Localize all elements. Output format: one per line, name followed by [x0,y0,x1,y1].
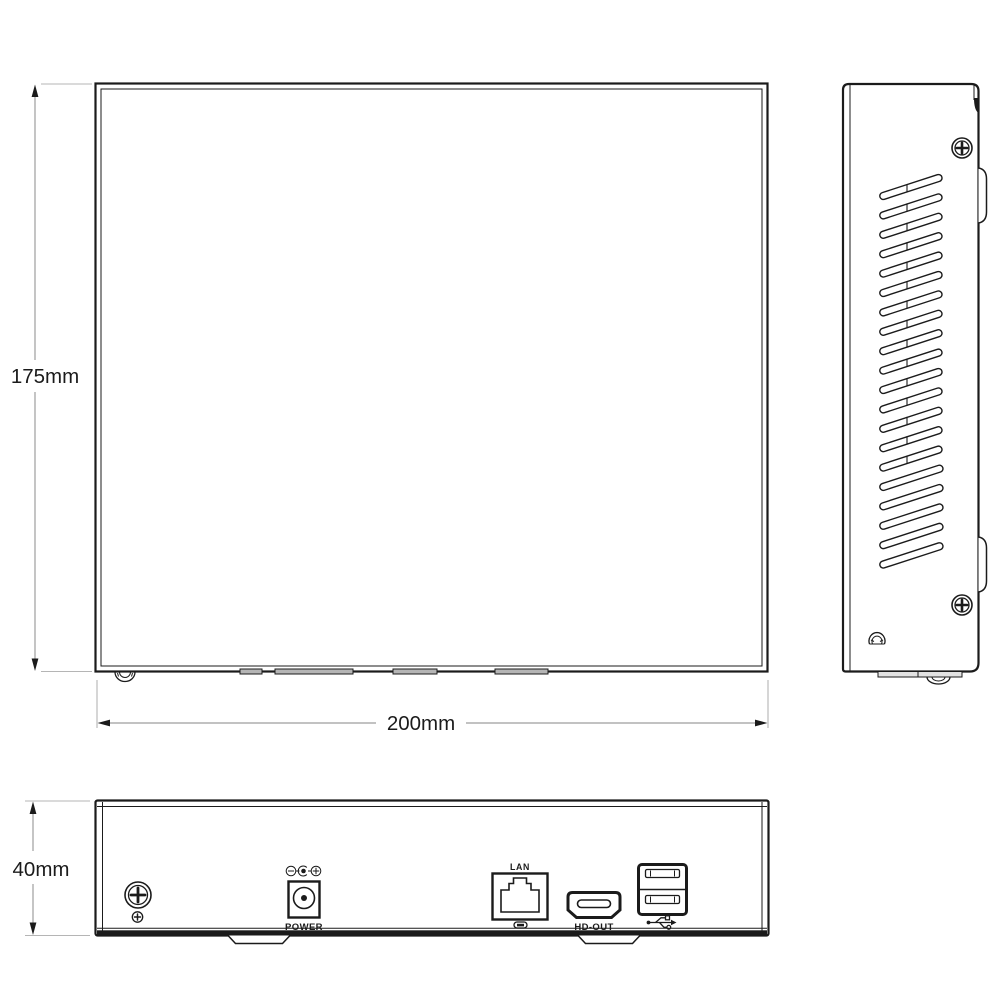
phillips-screw-icon [952,595,972,615]
hdmi-label: HD-OUT [574,922,613,933]
rubber-foot-icon [115,672,135,682]
lan-label: LAN [510,862,530,872]
rear-foot [228,936,290,944]
rear-panel-view: POWER LAN HD-OUT [96,801,769,944]
depth-dimension: 40mm [12,801,90,936]
ground-screw-icon [132,912,142,922]
dimension-arrow-icon [30,923,37,936]
bottom-tab [878,672,918,678]
rubber-foot-icon [927,677,950,684]
dimension-arrow-icon [32,659,39,672]
depth-dimension-label: 40mm [13,858,70,881]
height-dimension: 175mm [11,84,92,672]
hinge-bump [979,168,987,223]
power-label: POWER [285,922,323,933]
dimension-arrow-icon [98,720,111,727]
width-dimension: 200mm [97,680,768,738]
bottom-tab [495,669,548,674]
dimension-arrow-icon [30,802,37,815]
technical-drawing-canvas: POWER LAN HD-OUT [0,0,1000,1000]
bottom-tab [275,669,353,674]
dimension-diagram: POWER LAN HD-OUT [0,0,1000,1000]
height-dimension-label: 175mm [11,365,79,388]
top-view [96,84,768,682]
top-view-outline [96,84,768,672]
bottom-tab [393,669,437,674]
phillips-screw-icon [952,138,972,158]
side-view [843,84,987,684]
rear-bottom-band [97,930,767,936]
phillips-screw-icon [125,882,151,908]
dimension-arrow-icon [32,85,39,98]
bottom-tab [918,672,962,678]
dimension-arrow-icon [755,720,768,727]
width-dimension-label: 200mm [387,712,455,735]
hinge-bump [979,537,987,592]
bottom-tab [240,669,262,674]
rear-foot [578,936,640,944]
